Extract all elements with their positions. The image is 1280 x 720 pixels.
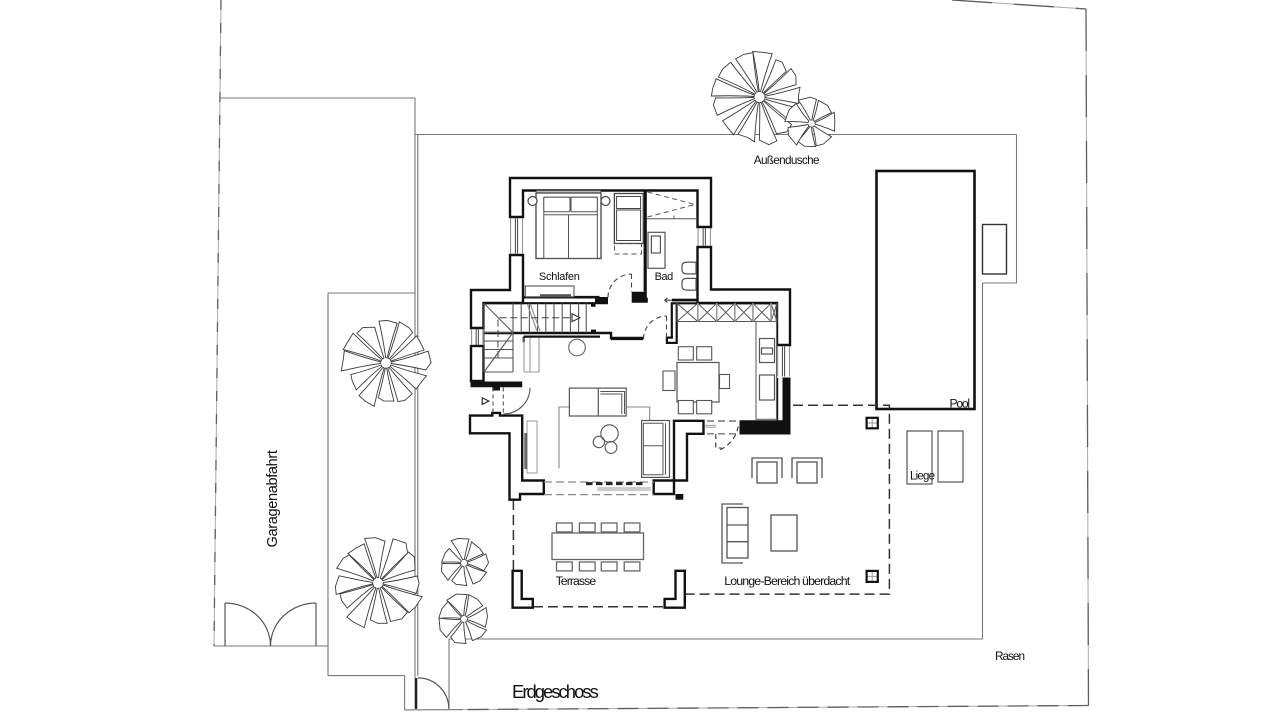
svg-text:Lounge-Bereich überdacht: Lounge-Bereich überdacht [724,574,851,588]
svg-text:Schlafen: Schlafen [539,271,580,283]
svg-text:Liege: Liege [910,471,935,483]
svg-text:Terrasse: Terrasse [556,574,597,588]
svg-text:Erdgeschoss: Erdgeschoss [512,681,599,702]
svg-text:Pool: Pool [950,397,971,411]
svg-text:Bad: Bad [655,271,674,283]
svg-text:Garagenabfahrt: Garagenabfahrt [265,450,281,548]
svg-text:Außendusche: Außendusche [754,154,820,167]
svg-text:Rasen: Rasen [995,649,1025,663]
